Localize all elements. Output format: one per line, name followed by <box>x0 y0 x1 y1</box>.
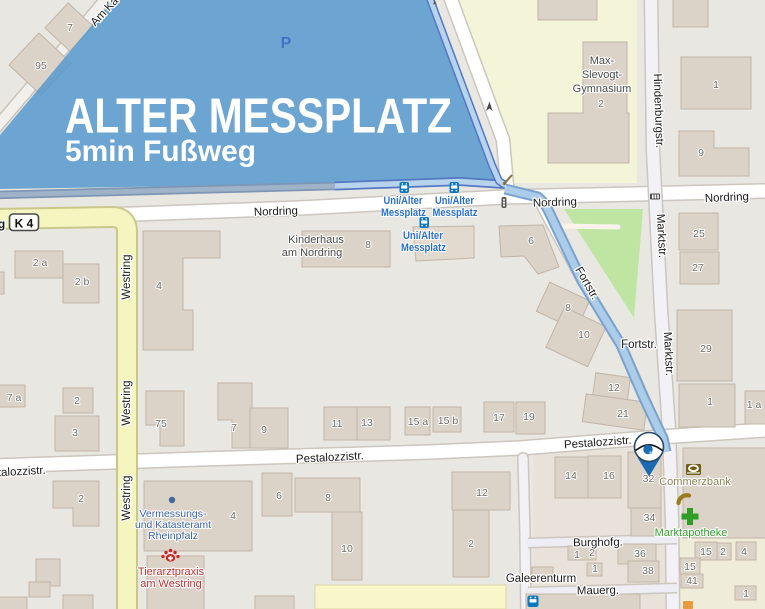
svg-text:7: 7 <box>231 422 237 434</box>
svg-text:12: 12 <box>476 487 488 499</box>
svg-text:Max-: Max- <box>590 55 615 67</box>
svg-text:10: 10 <box>341 543 353 555</box>
svg-text:16: 16 <box>603 470 615 482</box>
svg-text:4: 4 <box>741 546 747 558</box>
svg-text:17: 17 <box>493 412 505 424</box>
svg-text:4: 4 <box>230 510 236 522</box>
svg-text:15 a: 15 a <box>408 416 429 428</box>
svg-text:Kinderhaus: Kinderhaus <box>288 234 344 246</box>
svg-text:Mauerg.: Mauerg. <box>577 585 619 598</box>
svg-text:2: 2 <box>78 493 84 505</box>
svg-text:3: 3 <box>72 427 78 439</box>
svg-text:Messplatz: Messplatz <box>401 242 446 254</box>
svg-text:21: 21 <box>617 408 629 420</box>
svg-text:am Westring: am Westring <box>140 578 202 590</box>
svg-text:Slevogt-: Slevogt- <box>582 69 623 81</box>
svg-text:Marktstr.: Marktstr. <box>661 332 675 377</box>
svg-text:Burghofg.: Burghofg. <box>573 537 623 550</box>
svg-text:7: 7 <box>67 22 73 34</box>
svg-text:27: 27 <box>692 262 704 274</box>
svg-text:Gymnasium: Gymnasium <box>573 83 632 95</box>
svg-text:9: 9 <box>261 424 267 436</box>
svg-text:1: 1 <box>713 79 719 91</box>
svg-text:2 a: 2 a <box>33 257 48 269</box>
svg-text:41: 41 <box>686 575 698 587</box>
svg-text:38: 38 <box>642 565 654 577</box>
svg-text:25: 25 <box>693 228 705 240</box>
svg-text:15: 15 <box>700 546 712 558</box>
svg-text:Fortstr.: Fortstr. <box>621 339 657 351</box>
svg-text:2: 2 <box>74 395 80 407</box>
svg-text:Messplatz: Messplatz <box>381 207 426 219</box>
svg-text:Rheinpfalz: Rheinpfalz <box>148 530 198 542</box>
svg-text:8: 8 <box>365 239 371 251</box>
svg-text:K 4: K 4 <box>15 217 34 231</box>
svg-text:2: 2 <box>720 546 726 558</box>
svg-text:7 a: 7 a <box>7 392 22 404</box>
svg-text:Uni/Alter: Uni/Alter <box>384 195 424 207</box>
svg-text:2: 2 <box>468 538 474 550</box>
svg-text:Marktstr.: Marktstr. <box>654 214 668 259</box>
svg-text:Nordring: Nordring <box>705 191 750 205</box>
svg-text:13: 13 <box>361 417 373 429</box>
svg-text:2 b: 2 b <box>75 276 90 288</box>
svg-text:Commerzbank: Commerzbank <box>659 476 731 488</box>
svg-text:15 b: 15 b <box>438 415 459 427</box>
svg-text:Uni/Alter: Uni/Alter <box>435 195 475 207</box>
svg-text:Tierarztpraxis: Tierarztpraxis <box>138 566 205 578</box>
svg-text:Westring: Westring <box>121 254 133 299</box>
svg-text:Marktapotheke: Marktapotheke <box>655 527 728 539</box>
svg-text:36: 36 <box>634 548 646 560</box>
svg-text:1: 1 <box>743 588 749 600</box>
svg-text:95: 95 <box>35 60 47 72</box>
svg-text:34: 34 <box>644 512 656 524</box>
svg-text:11: 11 <box>332 418 343 430</box>
svg-text:4: 4 <box>156 280 162 292</box>
svg-text:6: 6 <box>276 490 282 502</box>
svg-text:1: 1 <box>574 549 580 561</box>
svg-text:Nordring: Nordring <box>254 205 299 219</box>
svg-text:1: 1 <box>707 396 713 408</box>
svg-text:6: 6 <box>528 235 534 247</box>
svg-text:8: 8 <box>325 492 331 504</box>
svg-text:Westring: Westring <box>121 475 133 520</box>
svg-text:1: 1 <box>592 563 598 575</box>
svg-text:P: P <box>281 35 292 52</box>
svg-text:75: 75 <box>155 418 167 430</box>
svg-text:Galeerenturm: Galeerenturm <box>506 573 576 585</box>
svg-text:14: 14 <box>565 470 577 482</box>
svg-text:Westring: Westring <box>121 380 133 425</box>
svg-text:1 a: 1 a <box>747 399 762 411</box>
svg-text:2: 2 <box>598 98 604 110</box>
svg-text:15: 15 <box>684 561 696 573</box>
svg-text:10: 10 <box>578 329 590 341</box>
svg-text:Uni/Alter: Uni/Alter <box>403 230 444 242</box>
svg-text:12: 12 <box>608 382 620 394</box>
svg-text:Nordring: Nordring <box>533 196 578 210</box>
svg-text:5min Fußweg: 5min Fußweg <box>65 135 256 168</box>
svg-text:Messplatz: Messplatz <box>433 207 478 219</box>
svg-text:9: 9 <box>698 147 704 159</box>
svg-text:19: 19 <box>523 411 535 423</box>
svg-text:am Nordring: am Nordring <box>282 247 343 259</box>
svg-text:29: 29 <box>700 343 712 355</box>
svg-text:2: 2 <box>589 547 595 559</box>
svg-text:8: 8 <box>565 302 571 314</box>
svg-text:talozzistr.: talozzistr. <box>0 465 46 479</box>
svg-text:g: g <box>0 217 5 231</box>
